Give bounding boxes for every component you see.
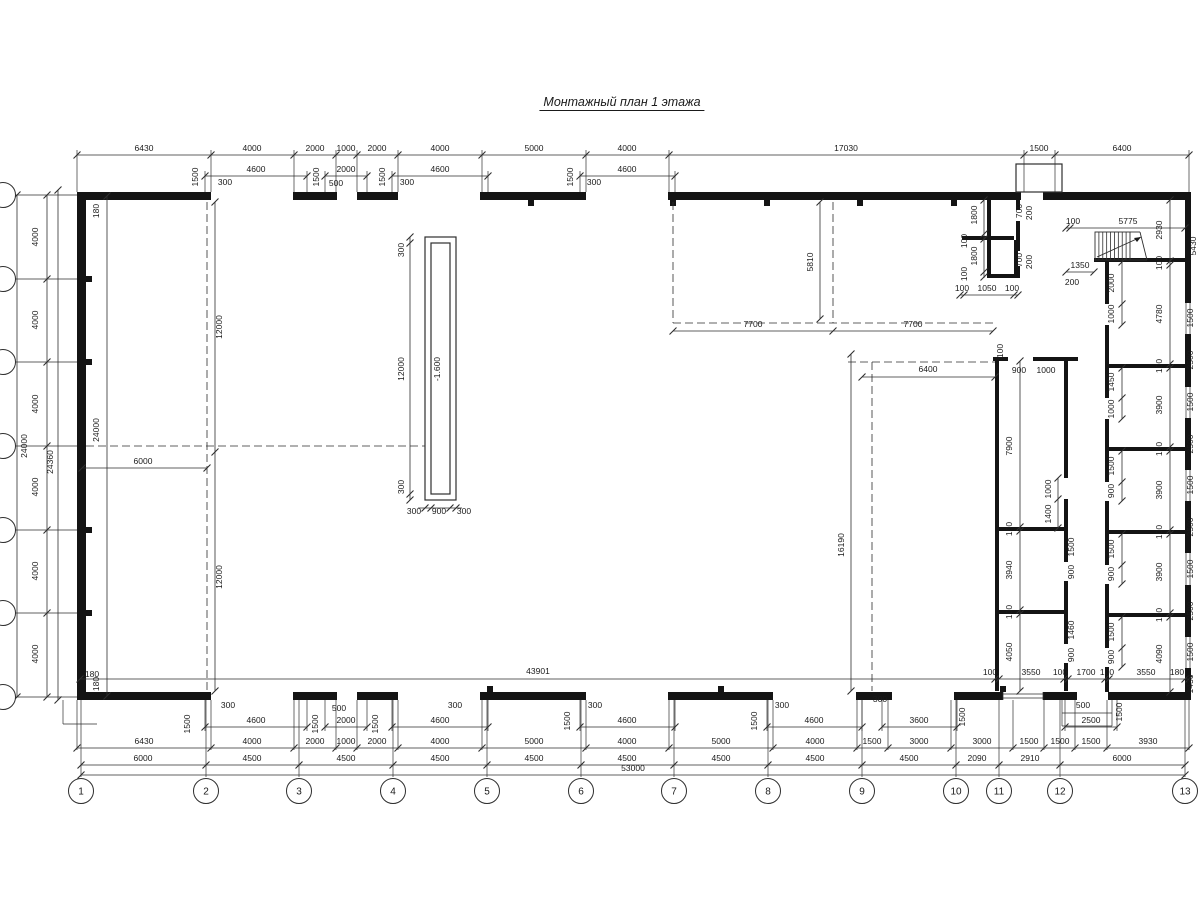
grid-axis-number: 12 <box>1054 787 1066 798</box>
wall-segment <box>1105 325 1109 364</box>
dim-label: 4000 <box>243 143 262 153</box>
dim-label: 6000 <box>1113 753 1132 763</box>
dim-label: 1430 <box>1185 674 1195 693</box>
grid-axis-bubble-left <box>0 267 16 292</box>
dim-label: 1450 <box>1106 372 1116 391</box>
dim-label: 300 <box>218 177 232 187</box>
dim-label: 4500 <box>618 753 637 763</box>
wall-pilaster <box>86 527 92 533</box>
dim-label: 900 <box>1106 567 1116 581</box>
grid-axis-number: 10 <box>950 787 962 798</box>
dim-label: 1500 <box>1185 308 1195 327</box>
wall-pilaster <box>86 359 92 365</box>
dim-label: 100 <box>1154 442 1164 456</box>
wall-segment <box>77 192 86 700</box>
grid-axis-number: 7 <box>671 787 677 798</box>
dim-label: 1500 <box>1185 392 1195 411</box>
dim-label: 4600 <box>247 164 266 174</box>
dim-label: 300 <box>448 700 462 710</box>
dim-label: 5000 <box>712 736 731 746</box>
wall-pilaster <box>487 686 493 692</box>
dim-label: 4000 <box>30 310 40 329</box>
dim-label: 1500 <box>1082 736 1101 746</box>
grid-axis-number: 11 <box>994 787 1005 798</box>
dim-label: 100 <box>1154 359 1164 373</box>
dim-label: 900 <box>432 506 446 516</box>
dim-label: 300 <box>587 177 601 187</box>
dim-label: 7700 <box>744 319 763 329</box>
dim-label: 900 <box>1066 565 1076 579</box>
dim-label: 4090 <box>1154 644 1164 663</box>
dim-label: 6400 <box>1113 143 1132 153</box>
wall-segment <box>1064 581 1068 610</box>
wall-pilaster <box>764 200 770 206</box>
wall-segment <box>480 192 586 200</box>
dim-label: 900 <box>1106 650 1116 664</box>
dim-label: 100 <box>955 283 969 293</box>
dim-label: 24360 <box>45 450 55 474</box>
dim-label: 1000 <box>1043 479 1053 498</box>
wall-segment <box>668 192 1016 200</box>
grid-axis-number: 2 <box>203 787 209 798</box>
wall-pilaster <box>718 686 724 692</box>
dim-label: 1500 <box>370 714 380 733</box>
wall-segment <box>357 692 398 700</box>
dim-label: 1350 <box>1071 260 1090 270</box>
dim-label: 2930 <box>1154 220 1164 239</box>
dim-label: 100 <box>983 667 997 677</box>
dim-label: 2000 <box>368 143 387 153</box>
dim-label: 5430 <box>1188 236 1198 255</box>
dim-label: 12000 <box>214 565 224 589</box>
dim-label: 24000 <box>91 418 101 442</box>
dim-label: 1800 <box>969 205 979 224</box>
dim-label: 3900 <box>1154 480 1164 499</box>
dim-label: 2000 <box>337 715 356 725</box>
dim-label: 1500 <box>1106 539 1116 558</box>
dim-label: 2500 <box>1185 517 1195 536</box>
dim-label: 43901 <box>526 666 550 676</box>
grid-axis-bubble-left <box>0 601 16 626</box>
wall-segment <box>1016 221 1020 251</box>
wall-segment <box>1105 584 1109 613</box>
dim-label: 500 <box>329 178 343 188</box>
dim-label: 1000 <box>337 736 356 746</box>
dim-label: 100 <box>1004 522 1014 536</box>
dim-label: 1500 <box>311 167 321 186</box>
dim-label: 6000 <box>134 456 153 466</box>
dim-label: 4000 <box>431 736 450 746</box>
dim-label: 200 <box>1024 206 1034 220</box>
grid-axis-number: 4 <box>390 787 396 798</box>
dim-label: 1400 <box>1043 504 1053 523</box>
dim-label: 500 <box>1076 700 1090 710</box>
dim-label: 100 <box>1154 256 1164 270</box>
dim-label: 5000 <box>525 736 544 746</box>
dim-label: 900 <box>1012 365 1026 375</box>
dim-label: 2910 <box>1021 753 1040 763</box>
wall-segment <box>1016 192 1021 200</box>
dim-label: 1800 <box>969 246 979 265</box>
dim-label: 4600 <box>805 715 824 725</box>
wall-segment <box>77 692 211 700</box>
dim-label: 2500 <box>1082 715 1101 725</box>
dim-label: 3000 <box>910 736 929 746</box>
dim-label: 1500 <box>377 167 387 186</box>
dim-label: 300 <box>400 177 414 187</box>
dim-label: 4000 <box>30 644 40 663</box>
dim-label: 100 <box>1004 605 1014 619</box>
wall-pilaster <box>1000 686 1006 692</box>
stair-edge <box>1140 232 1147 260</box>
dim-label: 3940 <box>1004 560 1014 579</box>
dim-label: 100 <box>1100 667 1114 677</box>
grid-axis-bubble-left <box>0 685 16 710</box>
dim-label: 7900 <box>1004 436 1014 455</box>
dim-label: 180 <box>1170 667 1184 677</box>
dim-label: 4600 <box>618 164 637 174</box>
dim-label: 180 <box>91 204 101 218</box>
dim-label: 4500 <box>337 753 356 763</box>
dim-label: 5810 <box>805 252 815 271</box>
dim-label: 1500 <box>1185 642 1195 661</box>
dim-label: 3550 <box>1022 667 1041 677</box>
dim-label: 180 <box>85 669 99 679</box>
dim-label: 300 <box>873 694 887 704</box>
wall-segment <box>1043 192 1063 200</box>
grid-axis-number: 8 <box>765 787 771 798</box>
wall-segment <box>293 692 337 700</box>
dim-label: 300 <box>407 506 421 516</box>
dim-label: 1000 <box>1106 399 1116 418</box>
dim-label: 6000 <box>134 753 153 763</box>
dim-label: 300 <box>396 243 406 257</box>
dim-label: 700 <box>1014 204 1024 218</box>
dim-label: 2000 <box>368 736 387 746</box>
dim-label: 4500 <box>806 753 825 763</box>
dim-label: 4000 <box>30 227 40 246</box>
wall-segment <box>1108 692 1191 700</box>
dim-label: 2000 <box>1106 273 1116 292</box>
dim-label: 4500 <box>712 753 731 763</box>
grid-axis-number: 1 <box>78 787 84 798</box>
dim-label: 5000 <box>525 143 544 153</box>
wall-segment <box>1064 361 1068 478</box>
dim-label: 200 <box>1065 277 1079 287</box>
wall-segment <box>357 192 398 200</box>
wall-segment <box>1043 692 1077 700</box>
dim-label: 2090 <box>968 753 987 763</box>
dim-label: 16190 <box>836 533 846 557</box>
dim-label: 4500 <box>900 753 919 763</box>
dim-label: 1500 <box>1020 736 1039 746</box>
dim-label: 1500 <box>1106 622 1116 641</box>
grid-axis-bubble-left <box>0 434 16 459</box>
wall-segment <box>962 236 1014 240</box>
dim-label: 1500 <box>1185 559 1195 578</box>
dim-label: 100 <box>1053 667 1067 677</box>
dim-label: 1500 <box>863 736 882 746</box>
wall-pilaster <box>86 610 92 616</box>
wall-pilaster <box>528 200 534 206</box>
dim-label: 53000 <box>621 763 645 773</box>
grid-axis-number: 3 <box>296 787 302 798</box>
dim-label: 4000 <box>806 736 825 746</box>
dim-label: 4000 <box>30 561 40 580</box>
dim-label: 4000 <box>618 736 637 746</box>
dim-label: 100 <box>1154 525 1164 539</box>
dim-label: 1050 <box>978 283 997 293</box>
dim-label: 4000 <box>431 143 450 153</box>
dim-label: 3900 <box>1154 395 1164 414</box>
dim-label: 1000 <box>1106 304 1116 323</box>
dim-label: 1500 <box>182 714 192 733</box>
dim-label: 100 <box>1005 283 1019 293</box>
dim-label: 4000 <box>30 477 40 496</box>
dim-label: 7700 <box>904 319 923 329</box>
grid-axis-bubble-left <box>0 183 16 208</box>
grid-axis-number: 9 <box>859 787 865 798</box>
dim-label: 2500 <box>1185 434 1195 453</box>
dim-label: 300 <box>457 506 471 516</box>
grid-axis-bubble-left <box>0 518 16 543</box>
dim-label: 300 <box>588 700 602 710</box>
dim-label: 100 <box>959 234 969 248</box>
wall-segment <box>293 192 337 200</box>
dim-label: 6430 <box>135 143 154 153</box>
dim-label: 4050 <box>1004 642 1014 661</box>
dim-label: 100 <box>995 344 1005 358</box>
dim-label: 1500 <box>1066 537 1076 556</box>
dim-label: 100 <box>1066 216 1080 226</box>
dim-label: 4000 <box>30 394 40 413</box>
dim-label: 4500 <box>431 753 450 763</box>
wall-segment <box>77 192 211 200</box>
wall-segment <box>954 692 1003 700</box>
dim-label: 1700 <box>1077 667 1096 677</box>
dim-label: 6400 <box>919 364 938 374</box>
dim-label: 3900 <box>1154 562 1164 581</box>
dim-label: 2500 <box>1185 601 1195 620</box>
wall-segment <box>995 357 999 691</box>
dim-label: 100 <box>959 267 969 281</box>
dim-label: 1500 <box>1106 456 1116 475</box>
dim-label: 4600 <box>247 715 266 725</box>
dim-label: 1500 <box>562 711 572 730</box>
grid-axis-bubble-left <box>0 350 16 375</box>
wall-segment <box>1105 419 1109 447</box>
dim-label: 4600 <box>431 164 450 174</box>
dim-label: 12000 <box>214 315 224 339</box>
drawing-canvas: Монтажный план 1 этажа 64304000200010002… <box>0 0 1200 900</box>
dim-label: 3600 <box>910 715 929 725</box>
dim-label: 3550 <box>1137 667 1156 677</box>
dim-label: 500 <box>332 703 346 713</box>
dim-label: 1000 <box>337 143 356 153</box>
dim-label: 1500 <box>1051 736 1070 746</box>
dim-label: 12000 <box>396 357 406 381</box>
dim-label: 1500 <box>310 714 320 733</box>
dim-label: -1.600 <box>432 357 442 381</box>
wall-segment <box>1033 357 1078 361</box>
dim-label: 24000 <box>19 434 29 458</box>
grid-axis-number: 5 <box>484 787 490 798</box>
dim-label: 1500 <box>565 167 575 186</box>
dim-label: 1500 <box>1185 475 1195 494</box>
stair-direction-arrow <box>1097 237 1141 257</box>
dim-label: 900 <box>1066 648 1076 662</box>
dim-label: 900 <box>1106 484 1116 498</box>
dim-label: 6430 <box>135 736 154 746</box>
dim-label: 1000 <box>1037 365 1056 375</box>
wall-segment <box>668 692 773 700</box>
dim-label: 1500 <box>1030 143 1049 153</box>
grid-axis-number: 6 <box>578 787 584 798</box>
dim-label: 1500 <box>957 707 967 726</box>
dim-label: 300 <box>396 480 406 494</box>
wall-pilaster <box>86 276 92 282</box>
dim-label: 3000 <box>973 736 992 746</box>
dim-label: 700 <box>1014 253 1024 267</box>
grid-axis-number: 13 <box>1179 787 1191 798</box>
dim-label: 2000 <box>306 736 325 746</box>
wall-segment <box>1105 501 1109 530</box>
dim-label: 3930 <box>1139 736 1158 746</box>
floor-plan-svg: 6430400020001000200040005000400017030150… <box>0 0 1200 900</box>
dim-label: 1500 <box>190 167 200 186</box>
dim-label: 5775 <box>1119 216 1138 226</box>
dim-label: 300 <box>775 700 789 710</box>
dim-label: 4500 <box>525 753 544 763</box>
dim-label: 1460 <box>1066 620 1076 639</box>
dim-label: 1500 <box>749 711 759 730</box>
wall-segment <box>1064 499 1068 528</box>
dim-label: 4000 <box>618 143 637 153</box>
dim-label: 200 <box>1024 255 1034 269</box>
dim-label: 2500 <box>1185 350 1195 369</box>
dim-label: 2000 <box>306 143 325 153</box>
dim-label: 4600 <box>618 715 637 725</box>
dim-label: 1500 <box>1114 702 1124 721</box>
dim-label: 4000 <box>243 736 262 746</box>
dim-label: 300 <box>221 700 235 710</box>
wall-segment <box>480 692 586 700</box>
dim-label: 4780 <box>1154 304 1164 323</box>
wall-pilaster <box>951 200 957 206</box>
dim-label: 4600 <box>431 715 450 725</box>
dim-label: 4500 <box>243 753 262 763</box>
dim-label: 100 <box>1154 608 1164 622</box>
wall-pilaster <box>857 200 863 206</box>
dim-label: 17030 <box>834 143 858 153</box>
dim-label: 2000 <box>337 164 356 174</box>
wall-segment <box>989 274 1018 278</box>
